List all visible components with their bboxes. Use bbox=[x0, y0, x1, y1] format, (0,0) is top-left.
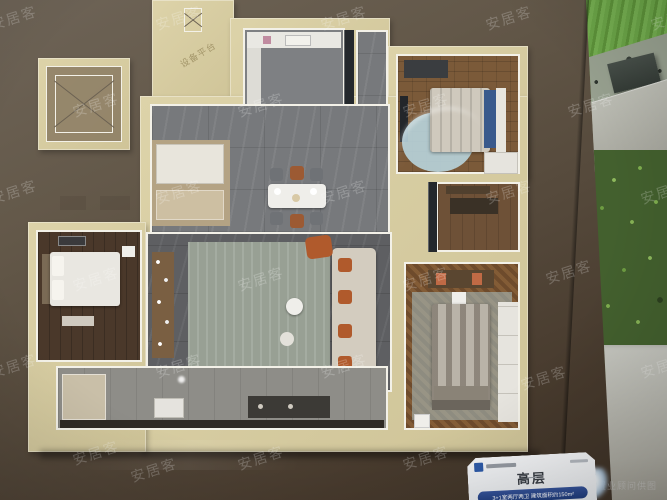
anjuke-watermark: 安居客 bbox=[638, 175, 667, 209]
anjuke-watermark: 安居客 bbox=[318, 175, 370, 209]
sign-spec-pill: 3+1室两厅两卫 建筑面积约150m² bbox=[477, 486, 587, 500]
anjuke-watermark: 安居客 bbox=[153, 175, 205, 209]
anjuke-watermark: 安居客 bbox=[483, 175, 535, 209]
anjuke-watermark: 安居客 bbox=[318, 349, 370, 383]
floorplan-sign: 高层 3+1室两厅两卫 建筑面积约150m² bbox=[467, 452, 598, 500]
anjuke-watermark: 安居客 bbox=[153, 1, 205, 35]
anjuke-watermark: 安居客 bbox=[318, 1, 370, 35]
developer-logo-icon bbox=[474, 463, 483, 472]
anjuke-watermark: 安居客 bbox=[153, 349, 205, 383]
anjuke-watermark: 安居客 bbox=[638, 349, 667, 383]
small-text-smudge bbox=[570, 459, 588, 463]
anjuke-watermark: 安居客 bbox=[235, 88, 287, 122]
sign-title-row: 高层 bbox=[468, 467, 597, 489]
anjuke-watermark: 安居客 bbox=[70, 88, 122, 122]
anjuke-watermark: 安居客 bbox=[128, 453, 180, 487]
anjuke-watermark: 安居客 bbox=[70, 436, 122, 470]
anjuke-watermark: 安居客 bbox=[400, 441, 452, 475]
watermark-layer: 安居客安居客安居客安居客安居客安居客安居客安居客安居客安居客安居客安居客安居客安… bbox=[0, 0, 667, 500]
anjuke-watermark: 安居客 bbox=[483, 1, 535, 35]
anjuke-watermark: 安居客 bbox=[648, 1, 667, 35]
sign-spec-text: 3+1室两厅两卫 建筑面积约150m² bbox=[492, 489, 574, 500]
anjuke-watermark: 安居客 bbox=[518, 361, 570, 395]
anjuke-watermark: 安居客 bbox=[235, 262, 287, 296]
anjuke-watermark: 安居客 bbox=[0, 1, 40, 35]
anjuke-watermark: 安居客 bbox=[565, 88, 617, 122]
anjuke-watermark: 安居客 bbox=[400, 262, 452, 296]
logo-text-smudge bbox=[486, 463, 516, 469]
photo-of-apartment-model: 设备平台 bbox=[0, 0, 667, 500]
anjuke-watermark: 安居客 bbox=[543, 255, 595, 289]
anjuke-watermark: 安居客 bbox=[70, 262, 122, 296]
anjuke-watermark: 安居客 bbox=[400, 88, 452, 122]
anjuke-watermark: 安居客 bbox=[0, 349, 40, 383]
anjuke-watermark: 安居客 bbox=[0, 175, 40, 209]
anjuke-watermark: 安居客 bbox=[235, 441, 287, 475]
